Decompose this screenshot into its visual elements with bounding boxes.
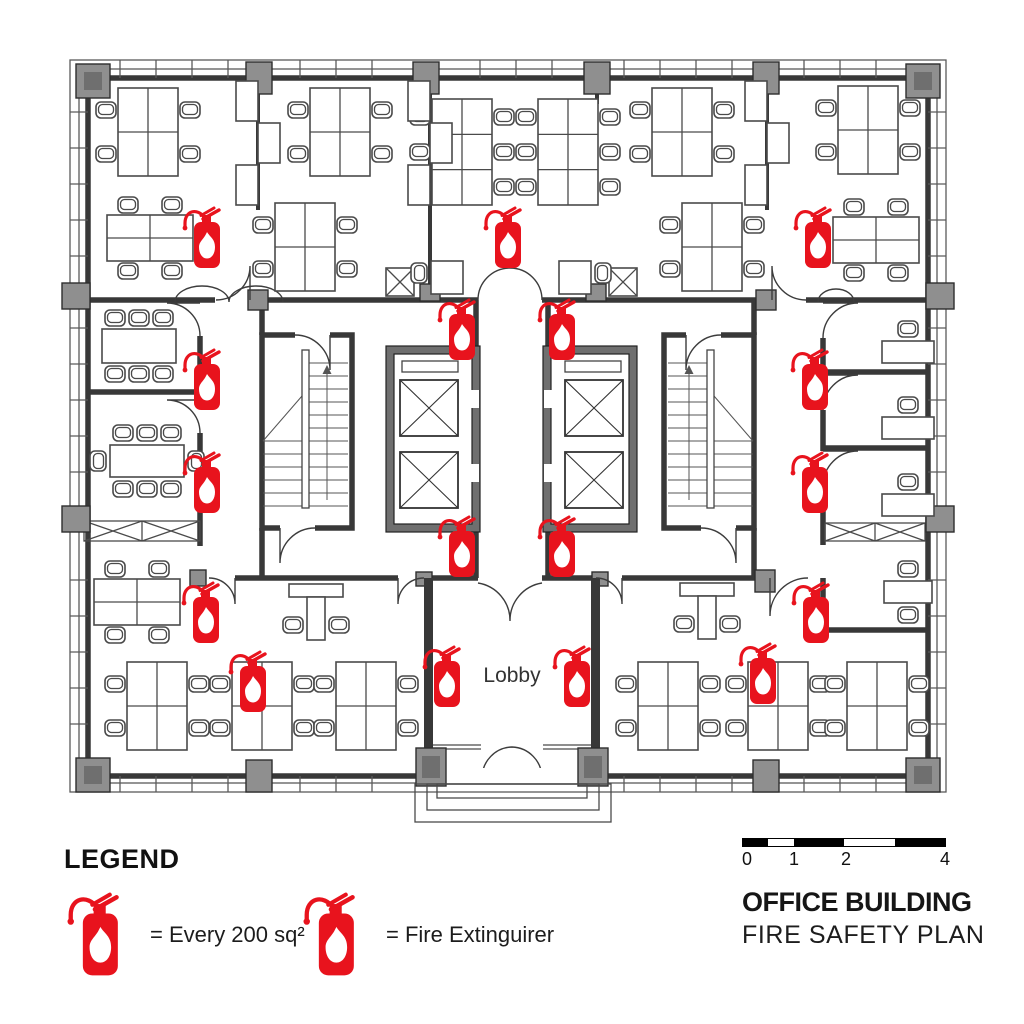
furniture-desk4v xyxy=(825,662,929,750)
furniture-cab xyxy=(745,81,789,205)
fire-extinguisher-icon xyxy=(553,647,590,707)
furniture-xcab xyxy=(386,268,414,296)
plan-subtitle: FIRE SAFETY PLAN xyxy=(742,921,950,950)
elevator-bank-right xyxy=(543,346,637,532)
fire-extinguisher-icon xyxy=(484,208,521,268)
column xyxy=(62,283,90,309)
legend-item-extinguisher: = Fire Extinguirer xyxy=(300,889,554,981)
furniture-desk4v xyxy=(630,88,734,176)
furniture-desk4v xyxy=(726,662,830,750)
fire-extinguisher-icon xyxy=(794,208,831,268)
scale-tick: 2 xyxy=(841,849,851,870)
legend-item-spacing: = Every 200 sq² xyxy=(64,889,305,981)
fire-extinguisher-icon xyxy=(791,453,828,513)
furniture-layer xyxy=(90,81,934,750)
column xyxy=(756,290,776,310)
furniture-desk4v xyxy=(105,662,209,750)
furniture-cab xyxy=(236,81,280,205)
scale-tick: 4 xyxy=(940,849,950,870)
title-block: 0 1 2 4 OFFICE BUILDING FIRE SAFETY PLAN xyxy=(742,838,950,950)
scale-bar-ticks: 0 1 2 4 xyxy=(742,849,950,871)
furniture-desk4v xyxy=(816,86,920,174)
entrance-steps xyxy=(415,784,611,822)
furniture-ldesk xyxy=(674,583,740,639)
legend-item-label: = Fire Extinguirer xyxy=(386,922,554,948)
furniture-desk4v xyxy=(96,88,200,176)
furniture-desk6 xyxy=(516,99,620,205)
furniture-desk4v xyxy=(288,88,392,176)
furniture-sdesk2 xyxy=(884,561,932,623)
column-core xyxy=(84,766,102,784)
furniture-desk4h xyxy=(833,199,919,281)
braced-wall-section xyxy=(84,521,200,541)
furniture-desk4v xyxy=(314,662,418,750)
scale-bar xyxy=(742,838,946,847)
scale-tick: 0 xyxy=(742,849,752,870)
fire-extinguisher-icon xyxy=(300,889,370,981)
column xyxy=(755,570,775,592)
column xyxy=(248,290,268,310)
column xyxy=(926,283,954,309)
lobby-label: Lobby xyxy=(483,664,541,687)
furniture-desk4v xyxy=(660,203,764,291)
fire-extinguisher-icon xyxy=(739,644,776,704)
furniture-ldesk xyxy=(283,584,349,640)
legend-item-label: = Every 200 sq² xyxy=(150,922,305,948)
furniture-desk4v xyxy=(616,662,720,750)
elevator-bank-left xyxy=(386,346,480,532)
fire-extinguisher-icon xyxy=(182,583,219,643)
furniture-desk4h xyxy=(107,197,193,279)
stairwell-left xyxy=(262,335,352,563)
stairwell-right xyxy=(664,335,754,563)
column xyxy=(62,506,90,532)
furniture-desk4h xyxy=(94,561,180,643)
furniture-conf6 xyxy=(102,310,176,382)
legend: LEGEND = Every 200 sq² = Fire Extinguire… xyxy=(64,844,684,989)
column-core xyxy=(914,766,932,784)
column-core xyxy=(914,72,932,90)
column-core xyxy=(84,72,102,90)
scale-tick: 1 xyxy=(789,849,799,870)
column xyxy=(246,760,272,792)
plan-title: OFFICE BUILDING xyxy=(742,887,950,918)
furniture-desk4v xyxy=(253,203,357,291)
furniture-wdesk xyxy=(411,261,463,294)
column xyxy=(584,62,610,94)
furniture-xcab xyxy=(609,268,637,296)
braced-wall-section xyxy=(825,523,925,541)
fire-extinguisher-icon xyxy=(64,889,134,981)
column xyxy=(190,570,206,586)
fire-safety-plan-page: Lobby LEGEND = Every 200 sq² = Fire Exti… xyxy=(0,0,1024,1024)
legend-heading: LEGEND xyxy=(64,844,684,875)
column xyxy=(753,760,779,792)
